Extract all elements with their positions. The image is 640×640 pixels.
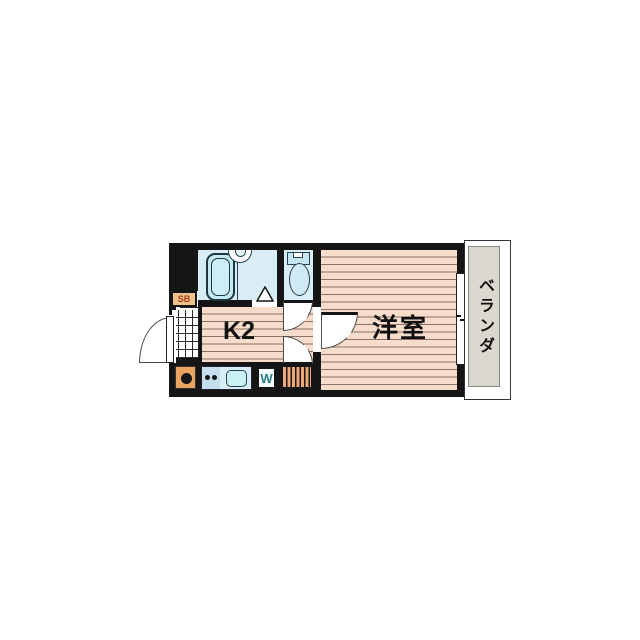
wall-bottom-right <box>321 390 464 397</box>
floor-plan-image: SB W K2 洋室 ベランダ <box>0 0 640 640</box>
dead-space-block <box>169 243 198 291</box>
western-room-doorway <box>313 307 321 352</box>
balcony-panel: ベランダ <box>468 246 500 387</box>
wall-bath-bottom <box>198 300 252 307</box>
balcony-label: ベランダ <box>472 277 496 357</box>
entry-kitchen-divider <box>199 307 202 362</box>
burner-section <box>202 367 220 389</box>
bathtub-icon <box>206 253 235 301</box>
washing-machine-space: W <box>257 367 276 389</box>
shoe-box-label: SB <box>178 294 191 304</box>
window-latch-tick <box>456 315 461 317</box>
washer-label: W <box>260 371 272 386</box>
wall-corridor-lower <box>313 352 321 397</box>
kitchen-sink-icon <box>226 370 247 387</box>
stove-icon <box>175 366 196 389</box>
wall-corridor-upper <box>313 243 321 307</box>
wall-right-lower <box>457 365 464 390</box>
toilet-bowl-icon <box>289 263 310 296</box>
western-room-label: 洋室 <box>362 310 438 342</box>
wall-bath-toilet <box>277 243 284 307</box>
shoe-box: SB <box>171 291 197 307</box>
wall-right-upper <box>457 250 464 273</box>
kitchen-label: K2 <box>214 315 264 347</box>
bath-door-triangle-icon <box>256 286 274 302</box>
step-hatch-area <box>281 365 313 389</box>
entrance-tiles <box>172 310 199 358</box>
front-door-leaf <box>166 316 174 363</box>
kitchen-counter <box>201 366 252 390</box>
